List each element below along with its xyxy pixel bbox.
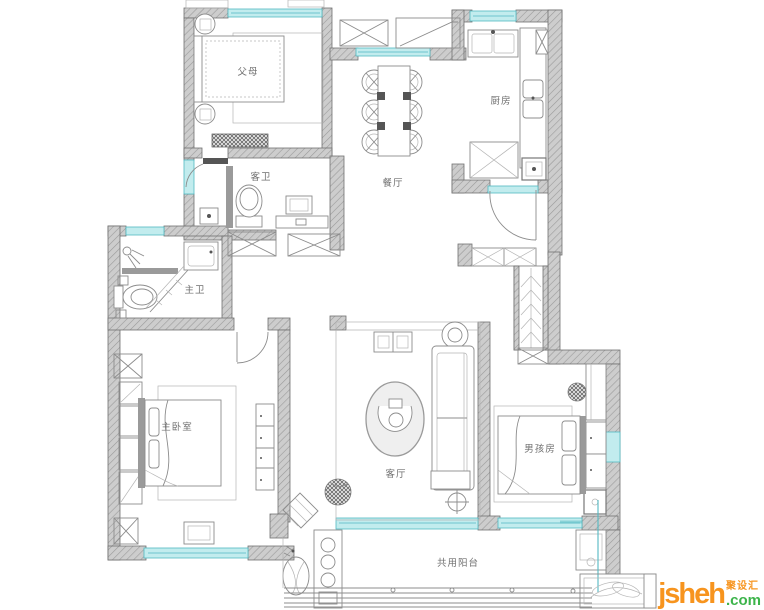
tv-cabinet — [374, 332, 412, 352]
desk — [586, 364, 606, 420]
boys-bed — [498, 416, 586, 494]
room-label-shared-balcony: 共用阳台 — [437, 555, 479, 569]
room-label-bedroom-2: 父母 — [237, 64, 258, 78]
entry-closet — [514, 266, 548, 364]
washing-machine — [576, 530, 606, 570]
room-label-dining-room: 餐厅 — [382, 175, 403, 189]
laundry-cabinet — [314, 530, 342, 608]
room-label-master-bathroom: 主卫 — [184, 282, 205, 296]
potted-plant — [325, 479, 351, 505]
room-label-master-bedroom: 主卧室 — [161, 419, 193, 433]
room-label-kitchen: 厨房 — [490, 93, 511, 107]
corner-unit — [522, 158, 546, 180]
nightstand — [584, 490, 606, 514]
exterior-ledges — [186, 0, 324, 8]
meter-box — [536, 30, 548, 54]
toilet — [236, 185, 262, 227]
bench-rug — [212, 134, 268, 147]
living-room-furniture — [325, 322, 480, 520]
kitchen-fixtures — [468, 28, 548, 240]
room-label-boys-room: 男孩房 — [524, 441, 556, 455]
side-table — [442, 322, 468, 348]
bedroom-door — [237, 332, 268, 363]
wardrobe-right — [256, 404, 274, 490]
room-label-living-room: 客厅 — [385, 466, 406, 480]
kitchen-door — [490, 190, 536, 240]
column-symbol — [445, 490, 469, 514]
shelf-cabinets — [586, 422, 606, 488]
partition-wall — [226, 166, 233, 228]
dining-table — [378, 66, 410, 156]
room-label-guest-bathroom: 客卫 — [250, 169, 271, 183]
shower-head — [123, 247, 144, 268]
watermark-suffix: .com — [726, 593, 761, 608]
area-rug — [366, 382, 424, 456]
plant-pot — [283, 557, 309, 595]
master-bathroom-fixtures — [114, 242, 218, 318]
floor-plan-canvas: 父母 客卫 主卫 主卧室 客厅 餐厅 厨房 男孩房 共用阳台 jsheh 聚设汇… — [0, 0, 764, 610]
shoe-cabinet — [472, 248, 536, 266]
toilet — [114, 285, 157, 318]
master-bed — [138, 398, 221, 488]
boys-room-furniture — [494, 364, 606, 514]
bedside-table — [195, 104, 215, 124]
flue-shaft — [340, 18, 460, 48]
desk-stool — [568, 383, 586, 401]
floor-plan-drawing — [0, 0, 764, 610]
master-bedroom-furniture — [114, 332, 274, 544]
fridge — [470, 142, 518, 178]
bedroom2-furniture — [194, 14, 323, 147]
bedside-table — [195, 14, 215, 34]
kitchen-sink-top — [468, 30, 518, 57]
shower-screen — [122, 268, 178, 274]
window-bench — [184, 522, 214, 544]
watermark-brand: jsheh — [658, 580, 724, 609]
sofa — [431, 346, 474, 490]
watermark-cn-name: 聚设汇 — [726, 582, 761, 592]
floor-drain — [200, 208, 218, 224]
dining-set — [362, 66, 422, 156]
vanity-sink — [276, 196, 328, 228]
door-leaf — [203, 158, 228, 164]
watermark: jsheh 聚设汇 .com — [658, 580, 761, 609]
washbasin — [184, 242, 218, 270]
